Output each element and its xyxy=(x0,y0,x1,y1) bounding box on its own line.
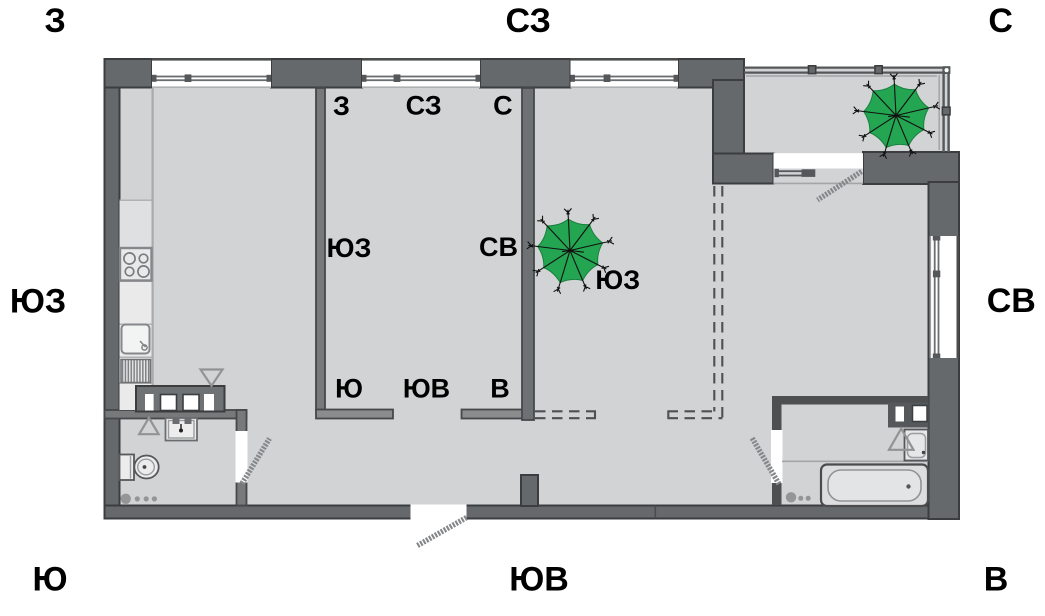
svg-text:З: З xyxy=(45,2,66,40)
svg-text:В: В xyxy=(490,374,510,404)
svg-text:СЗ: СЗ xyxy=(406,91,442,121)
svg-text:ЮЗ: ЮЗ xyxy=(595,265,640,295)
svg-text:ЮВ: ЮВ xyxy=(509,560,569,598)
svg-text:В: В xyxy=(984,560,1009,598)
svg-text:ЮЗ: ЮЗ xyxy=(10,282,66,320)
svg-text:СВ: СВ xyxy=(987,282,1036,320)
svg-text:ЮЗ: ЮЗ xyxy=(327,233,372,263)
svg-text:СЗ: СЗ xyxy=(505,2,550,40)
svg-text:СВ: СВ xyxy=(479,232,518,262)
svg-text:Ю: Ю xyxy=(32,560,67,598)
svg-text:С: С xyxy=(493,91,513,121)
svg-text:Ю: Ю xyxy=(335,374,363,404)
svg-text:ЮВ: ЮВ xyxy=(403,374,450,404)
svg-text:С: С xyxy=(988,2,1013,40)
svg-text:З: З xyxy=(333,91,350,121)
